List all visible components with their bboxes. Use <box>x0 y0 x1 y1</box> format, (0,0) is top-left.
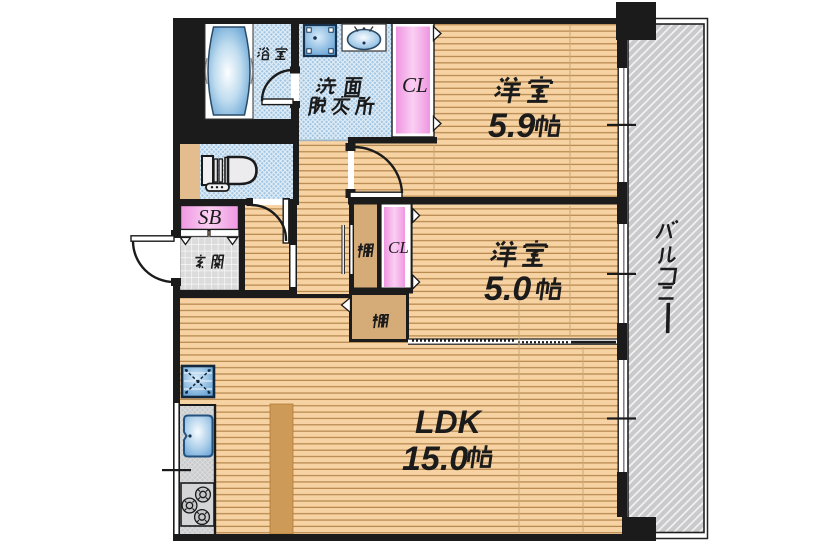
svg-text:SB: SB <box>198 205 222 229</box>
svg-text:15.0: 15.0 <box>402 440 468 478</box>
svg-text:CL: CL <box>402 73 428 97</box>
svg-text:LDK: LDK <box>415 404 484 440</box>
svg-text:CL: CL <box>388 238 409 257</box>
svg-text:5.0: 5.0 <box>484 270 531 308</box>
svg-text:5.9: 5.9 <box>488 107 535 145</box>
